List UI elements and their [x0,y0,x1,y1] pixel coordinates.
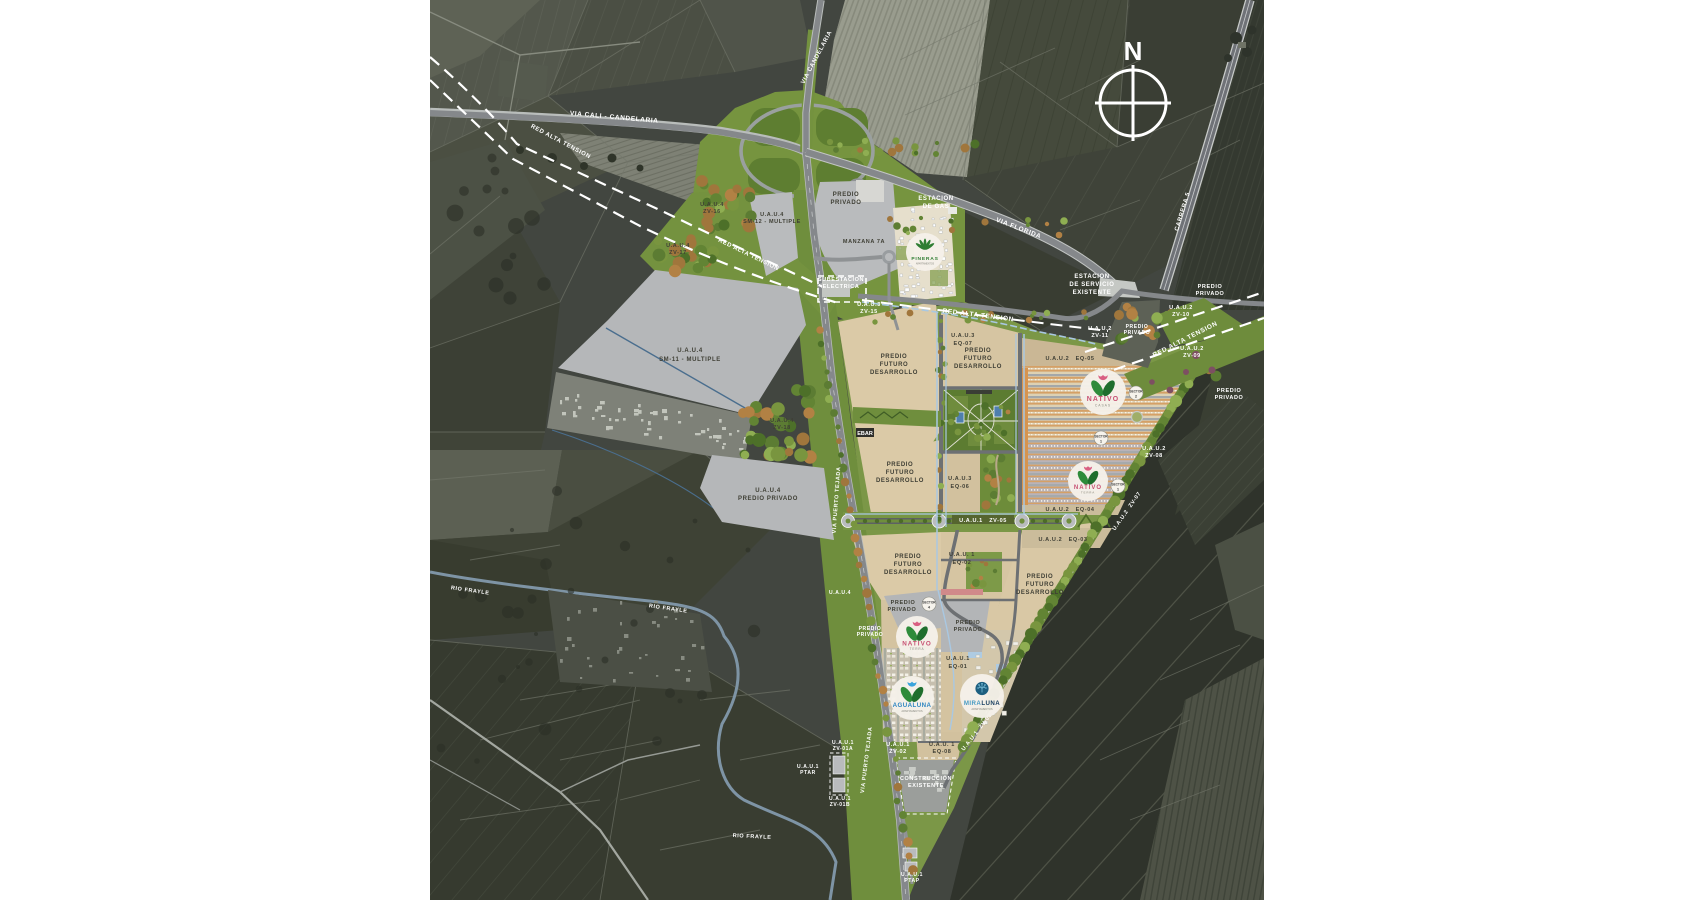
svg-text:ZV-02: ZV-02 [889,749,907,755]
svg-text:EXISTENTE: EXISTENTE [908,783,944,789]
svg-text:FUTURO: FUTURO [880,362,909,368]
svg-text:CASAS: CASAS [1095,403,1111,407]
svg-text:MANZANA 7A: MANZANA 7A [843,239,885,245]
svg-text:U.A.U.4: U.A.U.4 [760,212,784,218]
svg-text:ZV-17: ZV-17 [669,250,687,256]
svg-text:ZV-08: ZV-08 [1145,453,1163,459]
svg-text:DE SERVICIO: DE SERVICIO [1069,282,1114,288]
svg-text:EQ-07: EQ-07 [954,341,973,347]
svg-text:PRIVADO: PRIVADO [1196,291,1225,297]
svg-text:DESARROLLO: DESARROLLO [870,370,918,376]
svg-text:U.A.U.1: U.A.U.1 [946,656,970,662]
svg-text:PREDIO: PREDIO [881,354,908,360]
svg-text:U.A.U.4: U.A.U.4 [770,418,794,424]
svg-text:PREDIO: PREDIO [887,462,914,468]
svg-text:PREDIO: PREDIO [1217,388,1242,394]
svg-text:U.A.U.2: U.A.U.2 [1169,305,1193,311]
svg-text:SM-12 - MULTIPLE: SM-12 - MULTIPLE [743,219,801,225]
svg-text:U.A.U.3: U.A.U.3 [951,333,975,339]
svg-text:TERRA: TERRA [1081,490,1095,494]
svg-text:DE GAS: DE GAS [923,204,950,210]
svg-text:U.A.U.2: U.A.U.2 [1142,446,1166,452]
svg-text:ZV-16: ZV-16 [703,209,721,215]
svg-text:U.A.U. 1: U.A.U. 1 [929,742,955,748]
svg-text:U.A.U.1 ZV-05: U.A.U.1 ZV-05 [959,518,1007,524]
svg-text:ZV-15: ZV-15 [860,309,878,315]
svg-text:U.A.U.2 EQ-05: U.A.U.2 EQ-05 [1045,356,1094,362]
svg-text:DESARROLLO: DESARROLLO [954,364,1002,370]
svg-text:ZV-11: ZV-11 [1091,333,1108,339]
svg-text:NATIVO: NATIVO [1087,396,1119,403]
svg-text:PRIVADO: PRIVADO [1215,395,1244,401]
svg-text:PTAP: PTAP [904,878,919,884]
svg-text:EQ-01: EQ-01 [949,664,968,670]
svg-text:PTAR: PTAR [800,770,816,776]
svg-text:PINERAS: PINERAS [911,256,938,262]
svg-text:FUTURO: FUTURO [1026,582,1055,588]
svg-text:MIRALUNA: MIRALUNA [964,700,1000,707]
svg-text:FUTURO: FUTURO [886,470,915,476]
svg-text:EBAR: EBAR [857,431,873,437]
svg-text:PREDIO: PREDIO [956,620,981,626]
svg-text:N: N [1124,36,1143,66]
svg-text:ZV-01A: ZV-01A [833,746,854,752]
svg-text:PRIVADO: PRIVADO [1124,330,1151,336]
svg-text:ZV-18: ZV-18 [773,425,791,431]
svg-text:PRIVADO: PRIVADO [857,632,884,638]
svg-text:U.A.U.4: U.A.U.4 [700,202,724,208]
svg-text:EXISTENTE: EXISTENTE [1073,290,1112,296]
svg-text:AGUALUNA: AGUALUNA [893,702,932,709]
svg-text:CONSTRUCCIÓN: CONSTRUCCIÓN [900,774,952,782]
svg-text:FUTURO: FUTURO [964,356,993,362]
svg-text:PREDIO: PREDIO [1027,574,1054,580]
svg-text:U.A.U.3: U.A.U.3 [857,302,881,308]
svg-text:PRIVADO: PRIVADO [888,607,919,613]
svg-text:PREDIO: PREDIO [965,348,992,354]
svg-text:ZV-09: ZV-09 [1183,353,1201,359]
svg-text:ESTACION: ESTACION [918,196,953,202]
svg-text:PREDIO: PREDIO [891,600,916,606]
svg-text:U.A.U.2: U.A.U.2 [1088,326,1112,332]
svg-text:PREDIO: PREDIO [1198,284,1223,290]
svg-text:U.A.U.4: U.A.U.4 [677,348,703,354]
svg-text:U.A.U.4: U.A.U.4 [666,243,690,249]
svg-text:TERRA: TERRA [910,647,925,651]
svg-text:PREDIO: PREDIO [895,554,922,560]
svg-text:ZV-10: ZV-10 [1172,312,1190,318]
svg-text:ZV-01B: ZV-01B [830,802,851,808]
svg-text:U.A.U.1: U.A.U.1 [886,742,910,748]
svg-text:U.A.U.4: U.A.U.4 [829,590,851,596]
svg-text:FUTURO: FUTURO [894,562,923,568]
svg-text:PRIVADO: PRIVADO [830,200,861,206]
svg-text:U.A.U.4: U.A.U.4 [755,488,781,494]
svg-text:U.A.U.2: U.A.U.2 [1180,346,1204,352]
svg-text:PRIVADO: PRIVADO [954,627,983,633]
svg-text:DESARROLLO: DESARROLLO [1016,590,1064,596]
svg-text:PREDIO PRIVADO: PREDIO PRIVADO [738,496,798,502]
svg-text:ELECTRICA: ELECTRICA [823,284,860,290]
svg-text:DESARROLLO: DESARROLLO [884,570,932,576]
svg-text:APARTAMENTOS: APARTAMENTOS [901,709,922,713]
svg-text:U.A.U. 1: U.A.U. 1 [949,552,975,558]
svg-text:EQ-02: EQ-02 [953,560,972,566]
svg-text:SM-11 - MULTIPLE: SM-11 - MULTIPLE [659,357,721,363]
svg-text:EQ-06: EQ-06 [951,484,970,490]
svg-text:APARTAMENTOS: APARTAMENTOS [971,707,992,711]
svg-text:ESTACION: ESTACION [1074,274,1109,280]
svg-text:SUBESTACION: SUBESTACION [818,277,864,283]
svg-text:U.A.U.2 EQ-04: U.A.U.2 EQ-04 [1045,507,1094,513]
svg-text:APARTAMENTOS: APARTAMENTOS [916,263,935,266]
svg-text:U.A.U.3: U.A.U.3 [948,476,972,482]
svg-text:EQ-08: EQ-08 [933,749,952,755]
svg-text:PREDIO: PREDIO [833,192,860,198]
svg-text:DESARROLLO: DESARROLLO [876,478,924,484]
svg-text:U.A.U.2 EQ-03: U.A.U.2 EQ-03 [1038,537,1087,543]
